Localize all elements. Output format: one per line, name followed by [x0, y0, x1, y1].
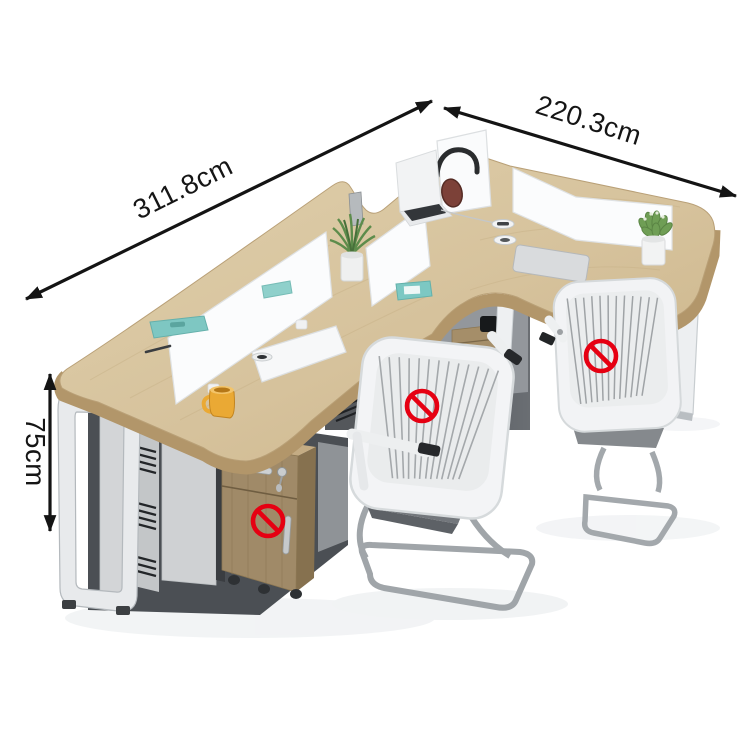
cable-clip	[480, 316, 498, 332]
key-lock-icon	[278, 468, 287, 477]
leg-foot	[62, 600, 76, 609]
dimension-label-height: 75cm	[20, 417, 51, 486]
office-chair-right	[539, 277, 683, 544]
armrest-pad	[539, 331, 556, 345]
workstation-illustration: 311.8cm 220.3cm 75cm	[0, 0, 750, 750]
product-dimension-image: 311.8cm 220.3cm 75cm	[0, 0, 750, 750]
caster-wheel	[228, 575, 240, 585]
caster-wheel	[258, 584, 270, 594]
leg-foot	[116, 606, 130, 615]
office-chair-front	[347, 335, 532, 608]
caster-wheel	[290, 589, 302, 599]
partition-foot	[296, 320, 307, 329]
dimension-label-depth: 220.3cm	[532, 89, 645, 151]
dimension-label-length: 311.8cm	[128, 150, 238, 225]
